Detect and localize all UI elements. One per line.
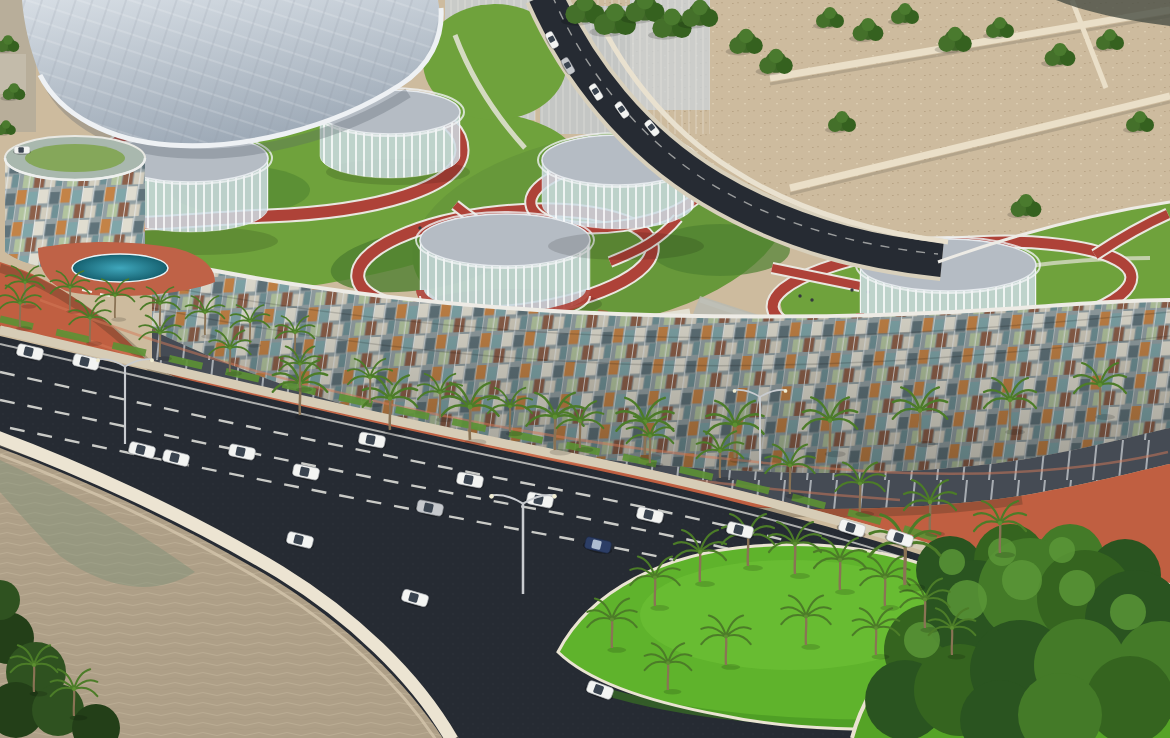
architectural-rendering [0, 0, 1170, 738]
tower-roof-garden [25, 144, 125, 172]
swimming-pool [72, 254, 168, 282]
car [13, 146, 31, 154]
rendering-canvas [0, 0, 1170, 738]
drum-shadow [548, 232, 704, 260]
